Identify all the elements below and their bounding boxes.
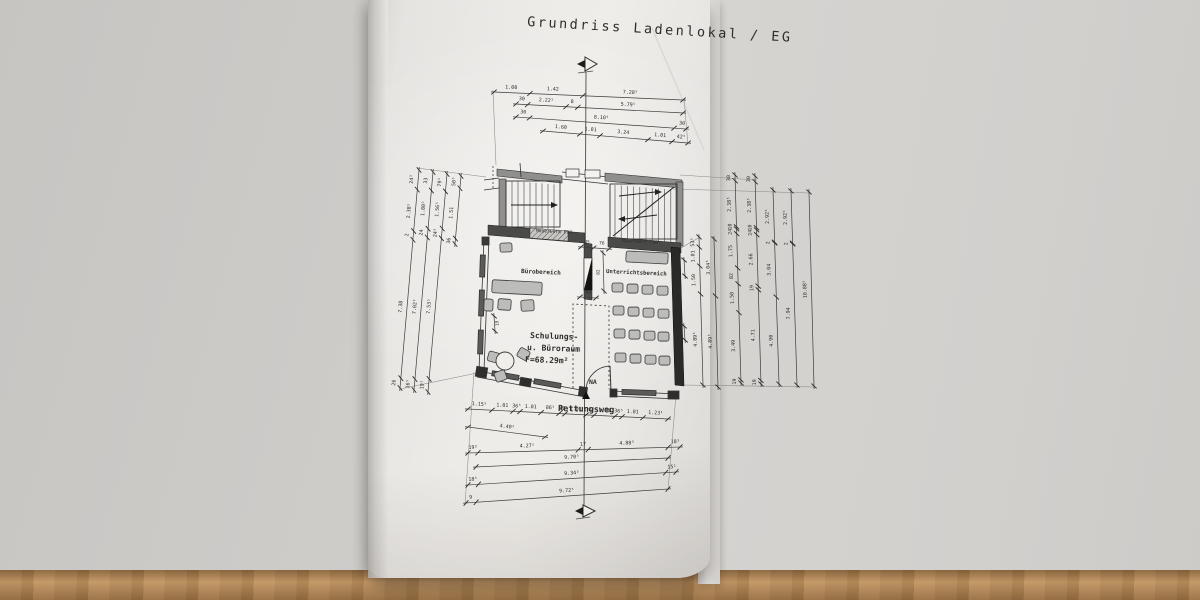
dim-label: 19¹	[419, 380, 426, 390]
student-seat	[613, 306, 624, 315]
dim-chain-top-4: 1.601.013.241.0142⁵	[540, 124, 691, 145]
classroom-board-table	[626, 251, 669, 264]
dim-chain-bot-2: 4.40⁵	[465, 423, 548, 439]
dim-line	[714, 236, 718, 390]
dim-line	[540, 131, 691, 143]
student-seat	[630, 354, 641, 363]
chair	[484, 299, 493, 311]
dim-label: 2.38⁵	[406, 203, 413, 219]
dim-label: 2.92⁵	[765, 209, 771, 224]
dim-label: 1.50	[691, 274, 697, 286]
schulung-label-line3: F=68.29m²	[525, 355, 569, 366]
dim-label: 30	[679, 121, 685, 127]
dim-label: 30	[520, 109, 526, 115]
dim-chain-right-6: 2.92⁵27.94	[783, 188, 800, 388]
dim-label: 1.01	[524, 404, 536, 411]
dim-label: 42⁵	[676, 134, 685, 141]
dim-label: 26	[391, 379, 398, 386]
schulung-label-line2: u. Büroraum	[527, 343, 580, 354]
student-seats	[612, 283, 670, 365]
dim-label: 9.70⁵	[564, 454, 579, 461]
left-stair-arrow-head	[551, 202, 558, 208]
dim-label: 4.71	[750, 329, 756, 341]
dim-label: 30	[559, 406, 565, 412]
dim-label: 36⁵	[512, 403, 521, 409]
dim-line	[735, 172, 741, 386]
dim-label: 19	[749, 285, 755, 291]
dim-label: 36	[446, 237, 453, 244]
left-staircase	[484, 163, 562, 230]
dim-label: 17	[580, 442, 586, 448]
stair-landing-connector	[562, 169, 608, 184]
dim-label: 30	[726, 175, 732, 181]
dim-label: 3.24	[617, 129, 630, 136]
dim-chain-right-4: 302.38⁵10242.66194.7119	[746, 173, 764, 387]
dim-label: 42	[587, 407, 593, 413]
student-seat	[628, 307, 639, 316]
photo-of-floorplan: Grundriss Ladenlokal / EG	[0, 0, 1200, 600]
dim-label: 45	[585, 289, 591, 295]
dim-label: 3.04	[766, 264, 772, 276]
section-flag-bottom	[575, 505, 595, 519]
dim-label: 7.02³	[412, 299, 419, 315]
dim-label: 7.38	[398, 301, 405, 314]
extension-lines	[400, 90, 815, 505]
dim-label: 4.89⁵	[693, 332, 699, 347]
dim-label: 7.94	[786, 307, 792, 319]
dim-label: 7.53⁵	[426, 299, 433, 315]
dim-label: 8.10⁵	[594, 114, 609, 121]
dim-label: 1.51	[448, 207, 455, 220]
student-seat	[658, 332, 669, 341]
dim-label: 1.01	[569, 406, 581, 413]
chair	[521, 300, 535, 312]
dim-label: 9.34³	[564, 470, 579, 477]
dim-label: 4.90	[768, 335, 774, 347]
dim-label: 19	[494, 320, 500, 326]
dim-label: 1.00	[505, 84, 517, 91]
dim-line	[699, 234, 703, 388]
dim-label: 1.56⁵	[434, 202, 441, 218]
dim-line	[400, 167, 420, 391]
student-seat	[629, 330, 640, 339]
student-seat	[657, 286, 668, 295]
dim-label: 1.01	[496, 402, 508, 409]
chair	[500, 243, 512, 252]
dim-line	[791, 188, 797, 388]
dim-label: 53⁵	[690, 238, 696, 247]
dim-label: 82	[729, 273, 735, 279]
dim-chain-top-3: 308.10⁵30	[513, 109, 689, 131]
dim-chain-right-3: 302.38⁵10241.75821.503.4919	[726, 172, 744, 386]
bottom-facade-left	[475, 366, 587, 397]
dim-chain-wall-82: 82	[595, 250, 606, 294]
dim-chain-left-4: 50⁵1.5136	[446, 173, 463, 247]
dim-label: 79⁵	[437, 177, 444, 187]
office-desk	[492, 280, 543, 296]
schulung-label-line1: Schulungs-	[530, 331, 578, 342]
dim-label: 45	[584, 239, 590, 245]
drawing-title: Grundriss Ladenlokal / EG	[527, 14, 793, 46]
right-stair-arrow-up-shaft	[619, 192, 655, 196]
right-stair-top-wall	[605, 173, 682, 188]
dim-chain-wall-19l: 19	[491, 313, 500, 334]
buero-room-label: Bürobereich	[521, 268, 561, 277]
entry-line-1	[484, 178, 499, 180]
section-flag-top	[577, 57, 597, 73]
dim-label: 7.28⁵	[623, 89, 638, 96]
dim-label: 9.72⁵	[559, 487, 574, 494]
dim-label: 2.38⁵	[747, 198, 753, 213]
dim-label: 4.88³	[619, 440, 634, 446]
dim-label: 2.92⁵	[783, 210, 789, 225]
dim-label: 19²	[468, 445, 477, 451]
dim-label: 18⁵	[468, 476, 477, 483]
dim-label: 3.49	[731, 340, 737, 352]
student-seat	[658, 309, 669, 318]
dim-line	[773, 187, 779, 387]
dim-label: 24³	[409, 175, 416, 185]
student-seat	[614, 329, 625, 338]
dim-label: 1.01	[654, 132, 667, 139]
dim-chain-right-2: 3.04⁵4.89⁵	[706, 236, 721, 390]
student-seat	[642, 285, 653, 294]
dim-label: 2.38⁵	[727, 197, 733, 212]
dim-line	[465, 447, 683, 453]
dim-chain-right-5: 2.92⁵23.044.90	[765, 187, 782, 387]
right-staircase	[605, 173, 683, 246]
dim-label: 10.88⁵	[802, 280, 808, 298]
title-group: Grundriss Ladenlokal / EG	[527, 14, 793, 46]
dim-label: 1.01	[690, 250, 696, 262]
dim-label: 18³	[671, 439, 680, 445]
dim-label: 86⁵	[546, 405, 555, 411]
dim-label: 2.22⁵	[539, 97, 554, 104]
dim-label: 50⁵	[451, 177, 458, 187]
dim-label: 3.04⁵	[706, 260, 712, 275]
dim-label: 24⁵	[432, 228, 439, 238]
student-seat	[659, 356, 670, 365]
student-seat	[644, 331, 655, 340]
left-stair-side-wall	[499, 179, 506, 228]
dim-label: 1.15⁵	[472, 401, 487, 408]
dim-label: 4.89⁵	[708, 334, 714, 349]
student-seat	[627, 284, 638, 293]
round-table	[496, 352, 514, 370]
dim-label: 1.60	[555, 124, 568, 131]
dim-label: 16⁵	[405, 379, 412, 389]
chair	[498, 299, 512, 311]
dim-label: 1.01	[626, 409, 638, 416]
dim-label: 1.01	[598, 408, 610, 415]
student-seat	[612, 283, 623, 292]
dimension-chains: 1.001.427.28⁵302.22⁵85.79⁵308.10⁵301.601…	[391, 84, 816, 505]
dim-label: 8	[571, 99, 574, 105]
dim-label: 1.75	[728, 245, 734, 257]
student-seat	[645, 355, 656, 364]
unterricht-room-label: Unterrichtsbereich	[606, 269, 667, 278]
dim-chain-bot-3: 19²4.27⁵174.88³18³	[465, 439, 683, 456]
dim-label: 2	[766, 241, 772, 244]
floorplan-drawing: Grundriss Ladenlokal / EG	[0, 0, 1200, 600]
dim-label: 24	[418, 229, 425, 236]
dim-label: 1.80⁵	[420, 201, 427, 217]
dim-label: 1.50	[729, 292, 735, 304]
dim-label: 82	[595, 269, 601, 275]
dim-label: 24	[728, 229, 734, 235]
dim-line	[809, 189, 814, 389]
bottom-facade-right	[610, 389, 679, 399]
dim-label: 2	[404, 233, 410, 237]
dim-label: 30	[519, 96, 525, 102]
entry-line-2	[484, 188, 499, 190]
dim-label: 36⁵	[614, 408, 623, 414]
dim-label: 33	[423, 177, 430, 184]
dim-line	[603, 250, 604, 294]
dim-line	[755, 173, 761, 387]
dim-label: 19	[752, 379, 758, 385]
dim-label: 4.40⁵	[499, 423, 515, 431]
dim-label: 1.23¹	[648, 410, 663, 417]
dim-label: 1.01	[584, 126, 597, 133]
dim-chain-bot-6: 99.72⁵	[463, 486, 671, 505]
dim-label: 1.42	[547, 86, 559, 93]
left-stair-treads	[512, 181, 554, 230]
dim-label: 24	[748, 230, 754, 236]
dim-label: 11	[676, 330, 682, 336]
dim-chain-bot-4: 9.70⁵	[473, 454, 671, 470]
dim-label: 2	[784, 242, 790, 245]
dim-label: 5.79⁵	[620, 102, 635, 109]
dim-label: 2.66	[748, 253, 754, 265]
dim-chain-bot-5: 18⁵9.34³15¹	[465, 464, 679, 488]
dim-line	[513, 104, 686, 113]
dim-label: 9	[469, 495, 472, 501]
student-seat	[615, 353, 626, 362]
dim-label: 19	[732, 378, 738, 384]
dim-chain-right-1: 53⁵1.011.504.89⁵	[690, 234, 706, 388]
dim-chain-right-7: 10.88⁵	[802, 189, 816, 389]
na-label: NA	[589, 378, 597, 386]
student-seat	[643, 308, 654, 317]
dim-label: 76	[599, 240, 605, 246]
dim-label: 4.27⁵	[520, 443, 535, 449]
dim-label: 15¹	[667, 464, 676, 471]
dim-label: 19	[676, 265, 682, 271]
dim-label: 30	[746, 176, 752, 182]
